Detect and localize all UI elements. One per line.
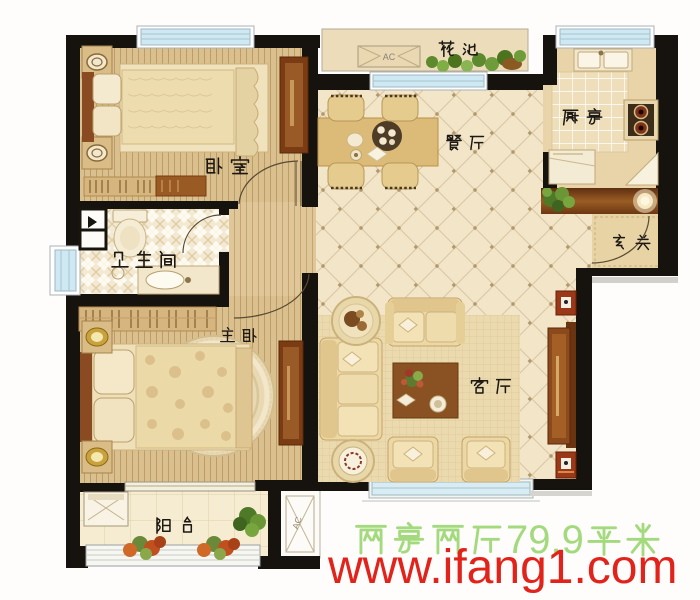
svg-text:www.ifang1.com: www.ifang1.com <box>327 541 677 594</box>
svg-text:AC: AC <box>383 52 396 62</box>
